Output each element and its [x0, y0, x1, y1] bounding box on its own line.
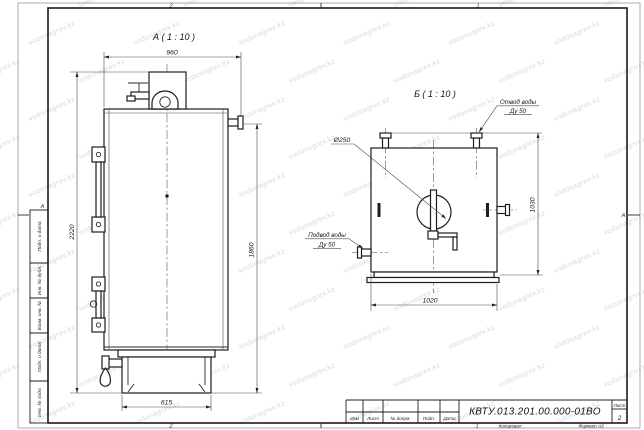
drawing-sheet: vodonagrev.kzvodonagrev.kzvodonagrev.kzv…: [0, 0, 644, 430]
outlet-callout: Отвод воды Ду 50: [479, 99, 539, 132]
sheet-label: Лист: [613, 403, 626, 408]
view-a: А ( 1 : 10 ): [69, 32, 262, 411]
base-rails: [367, 272, 499, 283]
dim-1020: 1020: [422, 298, 437, 305]
outlet-stub-side: [228, 116, 243, 129]
sheet-number: 2: [617, 415, 622, 422]
upper-door-hinge: [92, 147, 105, 232]
lower-door-hinge: [90, 277, 105, 332]
filing-label-3: Взам. инв. №: [37, 301, 43, 331]
inlet-callout-line1: Подвод воды: [308, 232, 346, 239]
lifting-lug: [152, 91, 178, 109]
filing-label-2: Инв. № дубл.: [37, 266, 43, 296]
zone-bottom-right: 1: [475, 424, 478, 430]
view-b: Б ( 1 : 10 ): [305, 89, 543, 311]
col-header-izm: Изм: [350, 416, 359, 421]
drain-tap: [100, 356, 122, 386]
inlet-callout-line2: Ду 50: [318, 242, 336, 249]
dim-960: 960: [166, 50, 178, 57]
col-header-podp: Подп.: [423, 416, 435, 421]
filing-label-1: Подп. и дата: [37, 221, 43, 251]
dim-615: 615: [161, 400, 173, 407]
title-block: Изм Лист № докум. Подп. Дата КВТУ.013.20…: [346, 400, 627, 429]
filing-label-5: Инв. № подл.: [37, 387, 43, 417]
col-header-doc: № докум.: [390, 416, 410, 421]
view-a-label: А ( 1 : 10 ): [152, 32, 195, 42]
left-bracket-tick: [378, 203, 381, 217]
copied-label: Копировал: [499, 424, 522, 429]
filing-column: Подп. и дата Инв. № дубл. Взам. инв. № П…: [30, 210, 48, 423]
outlet-callout-line1: Отвод воды: [500, 99, 537, 106]
base-pedestal: [118, 350, 215, 393]
col-header-data: Дата: [442, 416, 456, 421]
dim-2220: 2220: [69, 224, 76, 240]
air-valve-lever: [127, 83, 149, 101]
dim-1030: 1030: [530, 197, 537, 212]
zone-row-right: А: [621, 213, 626, 219]
boiler-body: [104, 109, 228, 350]
outlet-callout-line2: Ду 50: [509, 108, 527, 115]
document-number: КВТУ.013.201.00.000-01ВО: [469, 407, 601, 418]
zone-row-left: А: [40, 204, 45, 210]
format-label: Формат А3: [578, 424, 604, 429]
zone-bottom-left: 2: [168, 424, 173, 430]
dim-flue-diameter: Ø250: [333, 137, 351, 144]
engineering-drawing: 2 1 2 1 А А Подп. и дата Инв. № дубл. Вз…: [0, 0, 644, 430]
zone-top-right: 1: [476, 3, 479, 9]
filing-label-4: Подп. и дата: [37, 342, 43, 372]
body-weld-dot: [165, 194, 168, 197]
view-b-label: Б ( 1 : 10 ): [414, 89, 456, 99]
inlet-callout: Подвод воды Ду 50: [305, 232, 363, 249]
col-header-list: Лист: [366, 416, 379, 421]
dim-1860: 1860: [249, 242, 256, 257]
